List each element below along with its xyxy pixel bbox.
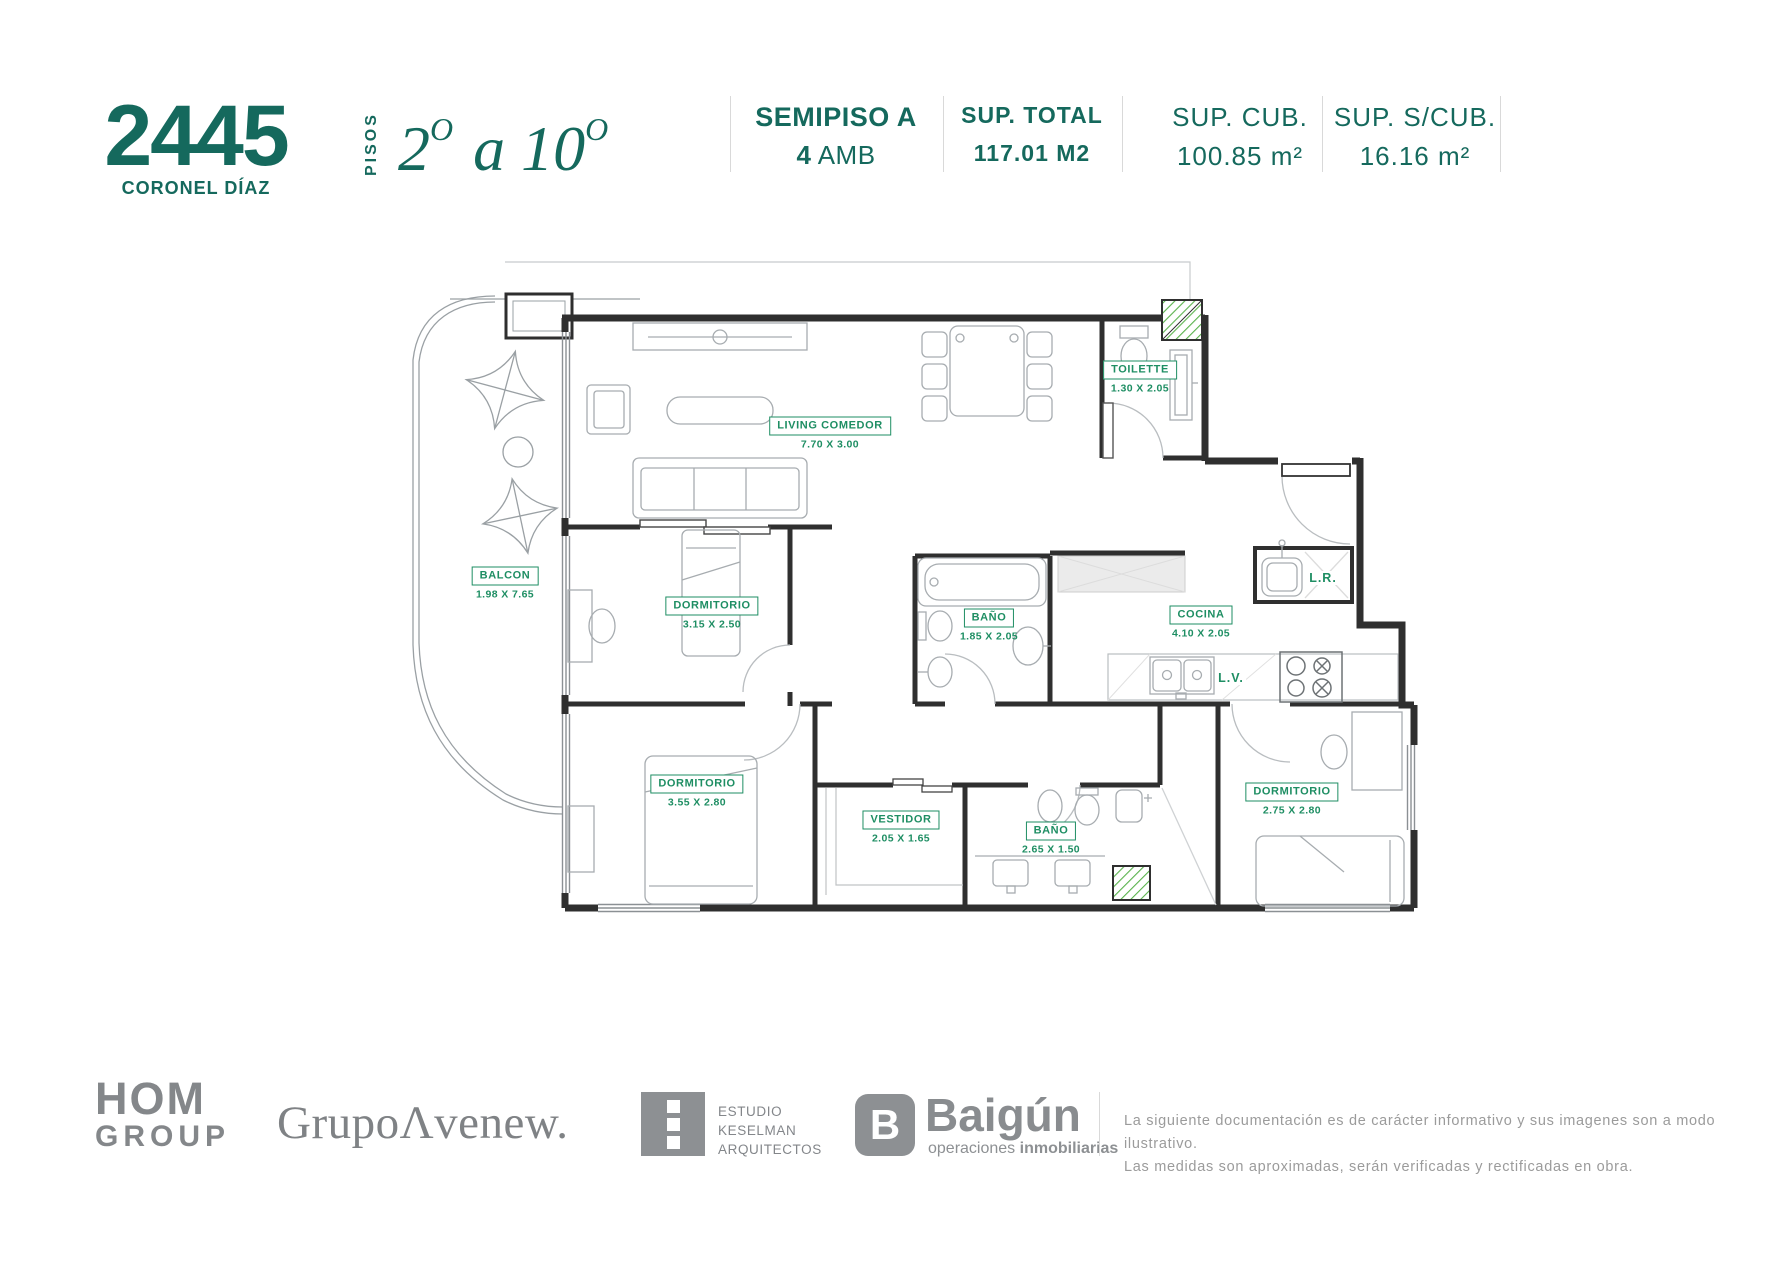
keselman-logo-icon xyxy=(641,1092,705,1156)
tag-lr: L.R. xyxy=(1307,571,1339,585)
room-label-cocina: COCINA 4.10 X 2.05 xyxy=(1170,605,1233,640)
baigun-logo-icon: B xyxy=(855,1094,915,1156)
tag-lv: L.V. xyxy=(1216,671,1246,685)
room-label-toilette: TOILETTE 1.30 X 2.05 xyxy=(1103,360,1177,395)
grupo-avenew-logo: GrupoΛvenew. xyxy=(277,1096,569,1150)
floorplan-area: LIVING COMEDOR 7.70 X 3.00 TOILETTE 1.30… xyxy=(0,0,1792,1267)
baigun-name: Baigún xyxy=(925,1088,1081,1142)
hom-group-logo: HOM GROUP xyxy=(95,1078,230,1154)
toilette-door-leaf xyxy=(1103,403,1113,458)
keselman-text: ESTUDIO KESELMAN ARQUITECTOS xyxy=(718,1102,822,1159)
room-label-dormitorio-3: DORMITORIO 2.75 X 2.80 xyxy=(1245,782,1338,817)
floorplan-sheet: 2445 CORONEL DÍAZ PISOS 2O a 10O SEMIPIS… xyxy=(0,0,1792,1267)
room-label-dormitorio-2: DORMITORIO 3.55 X 2.80 xyxy=(650,774,743,809)
room-label-dormitorio-1: DORMITORIO 3.15 X 2.50 xyxy=(665,596,758,631)
room-label-living: LIVING COMEDOR 7.70 X 3.00 xyxy=(769,416,891,451)
entry-door-leaf xyxy=(1282,464,1350,476)
furniture-bano2 xyxy=(975,788,1216,905)
footer-divider xyxy=(1099,1092,1100,1156)
planter-box xyxy=(505,262,1190,338)
baigun-tagline: operaciones inmobiliarias xyxy=(928,1140,1118,1158)
balcony xyxy=(413,296,640,814)
room-label-bano-2: BAÑO 2.65 X 1.50 xyxy=(1022,821,1080,856)
room-label-vestidor: VESTIDOR 2.05 X 1.65 xyxy=(862,810,939,845)
disclaimer-text: La siguiente documentación es de carácte… xyxy=(1124,1110,1792,1179)
room-label-bano-1: BAÑO 1.85 X 2.05 xyxy=(960,608,1018,643)
room-label-balcon: BALCON 1.98 X 7.65 xyxy=(472,566,539,601)
